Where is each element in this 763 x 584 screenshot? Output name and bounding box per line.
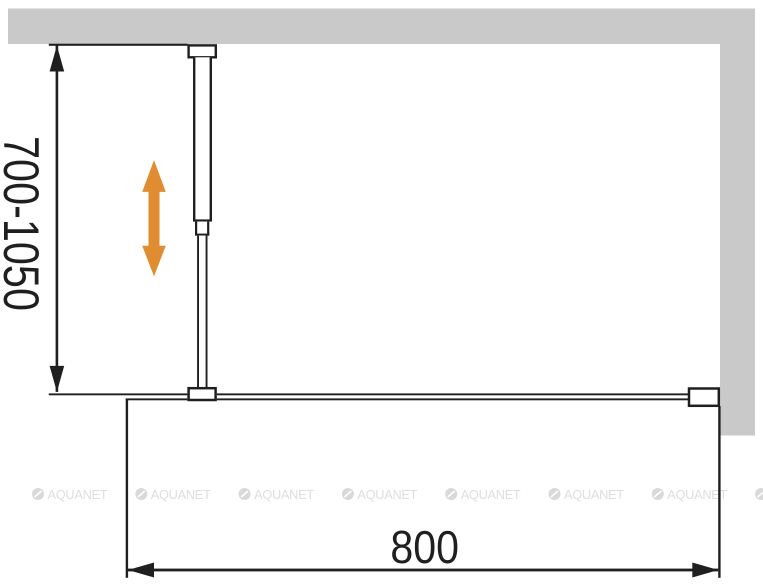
- svg-text:700-1050: 700-1050: [0, 136, 50, 311]
- svg-text:AQUANET: AQUANET: [151, 487, 211, 502]
- svg-text:AQUANET: AQUANET: [48, 487, 108, 502]
- svg-text:AQUANET: AQUANET: [357, 487, 417, 502]
- svg-text:AQUANET: AQUANET: [564, 487, 624, 502]
- svg-text:AQUANET: AQUANET: [461, 487, 521, 502]
- svg-text:800: 800: [390, 521, 459, 573]
- svg-text:AQUANET: AQUANET: [254, 487, 314, 502]
